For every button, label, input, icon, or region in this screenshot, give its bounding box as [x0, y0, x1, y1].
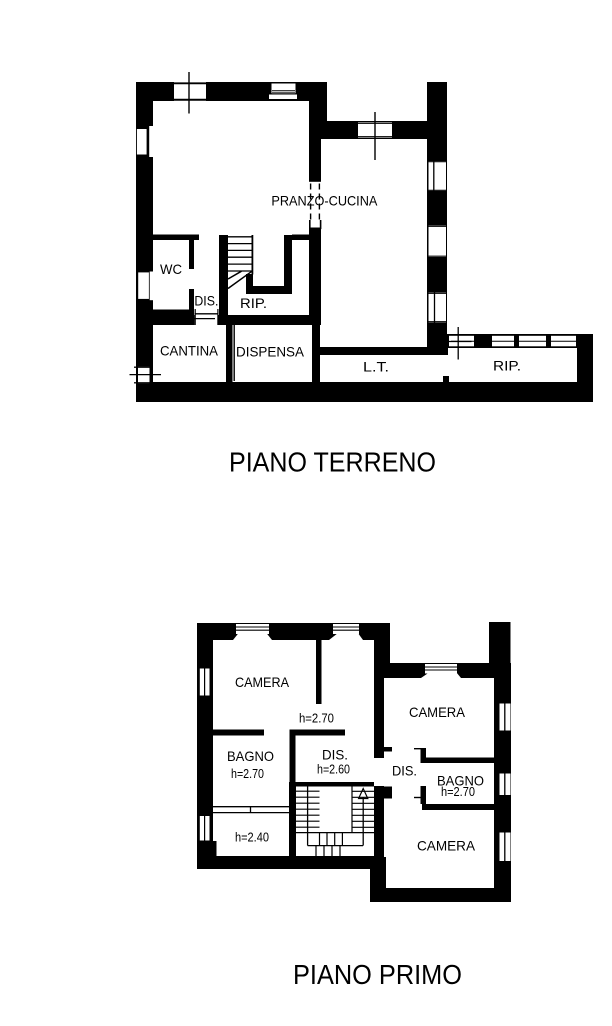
svg-text:CANTINA: CANTINA: [160, 343, 219, 359]
svg-text:PRANZO-CUCINA: PRANZO-CUCINA: [271, 193, 378, 209]
svg-text:RIP.: RIP.: [493, 358, 521, 374]
svg-text:CAMERA: CAMERA: [417, 838, 476, 854]
svg-text:CAMERA: CAMERA: [409, 704, 466, 720]
svg-text:WC: WC: [160, 261, 182, 277]
svg-text:DIS.: DIS.: [392, 763, 417, 779]
svg-text:h=2.70: h=2.70: [299, 712, 334, 726]
svg-text:h=2.40: h=2.40: [235, 831, 269, 845]
svg-text:PIANO TERRENO: PIANO TERRENO: [229, 447, 436, 478]
svg-text:h=2.60: h=2.60: [317, 763, 350, 777]
svg-text:CAMERA: CAMERA: [235, 674, 290, 690]
svg-text:h=2.70: h=2.70: [231, 767, 264, 781]
svg-text:RIP.: RIP.: [240, 295, 267, 311]
svg-text:L.T.: L.T.: [363, 359, 389, 375]
svg-text:DIS.: DIS.: [194, 293, 218, 309]
svg-text:BAGNO: BAGNO: [227, 748, 274, 764]
svg-text:h=2.70: h=2.70: [441, 785, 475, 799]
svg-text:DIS.: DIS.: [322, 747, 348, 763]
svg-text:PIANO PRIMO: PIANO PRIMO: [293, 959, 462, 990]
svg-text:DISPENSA: DISPENSA: [236, 344, 305, 360]
